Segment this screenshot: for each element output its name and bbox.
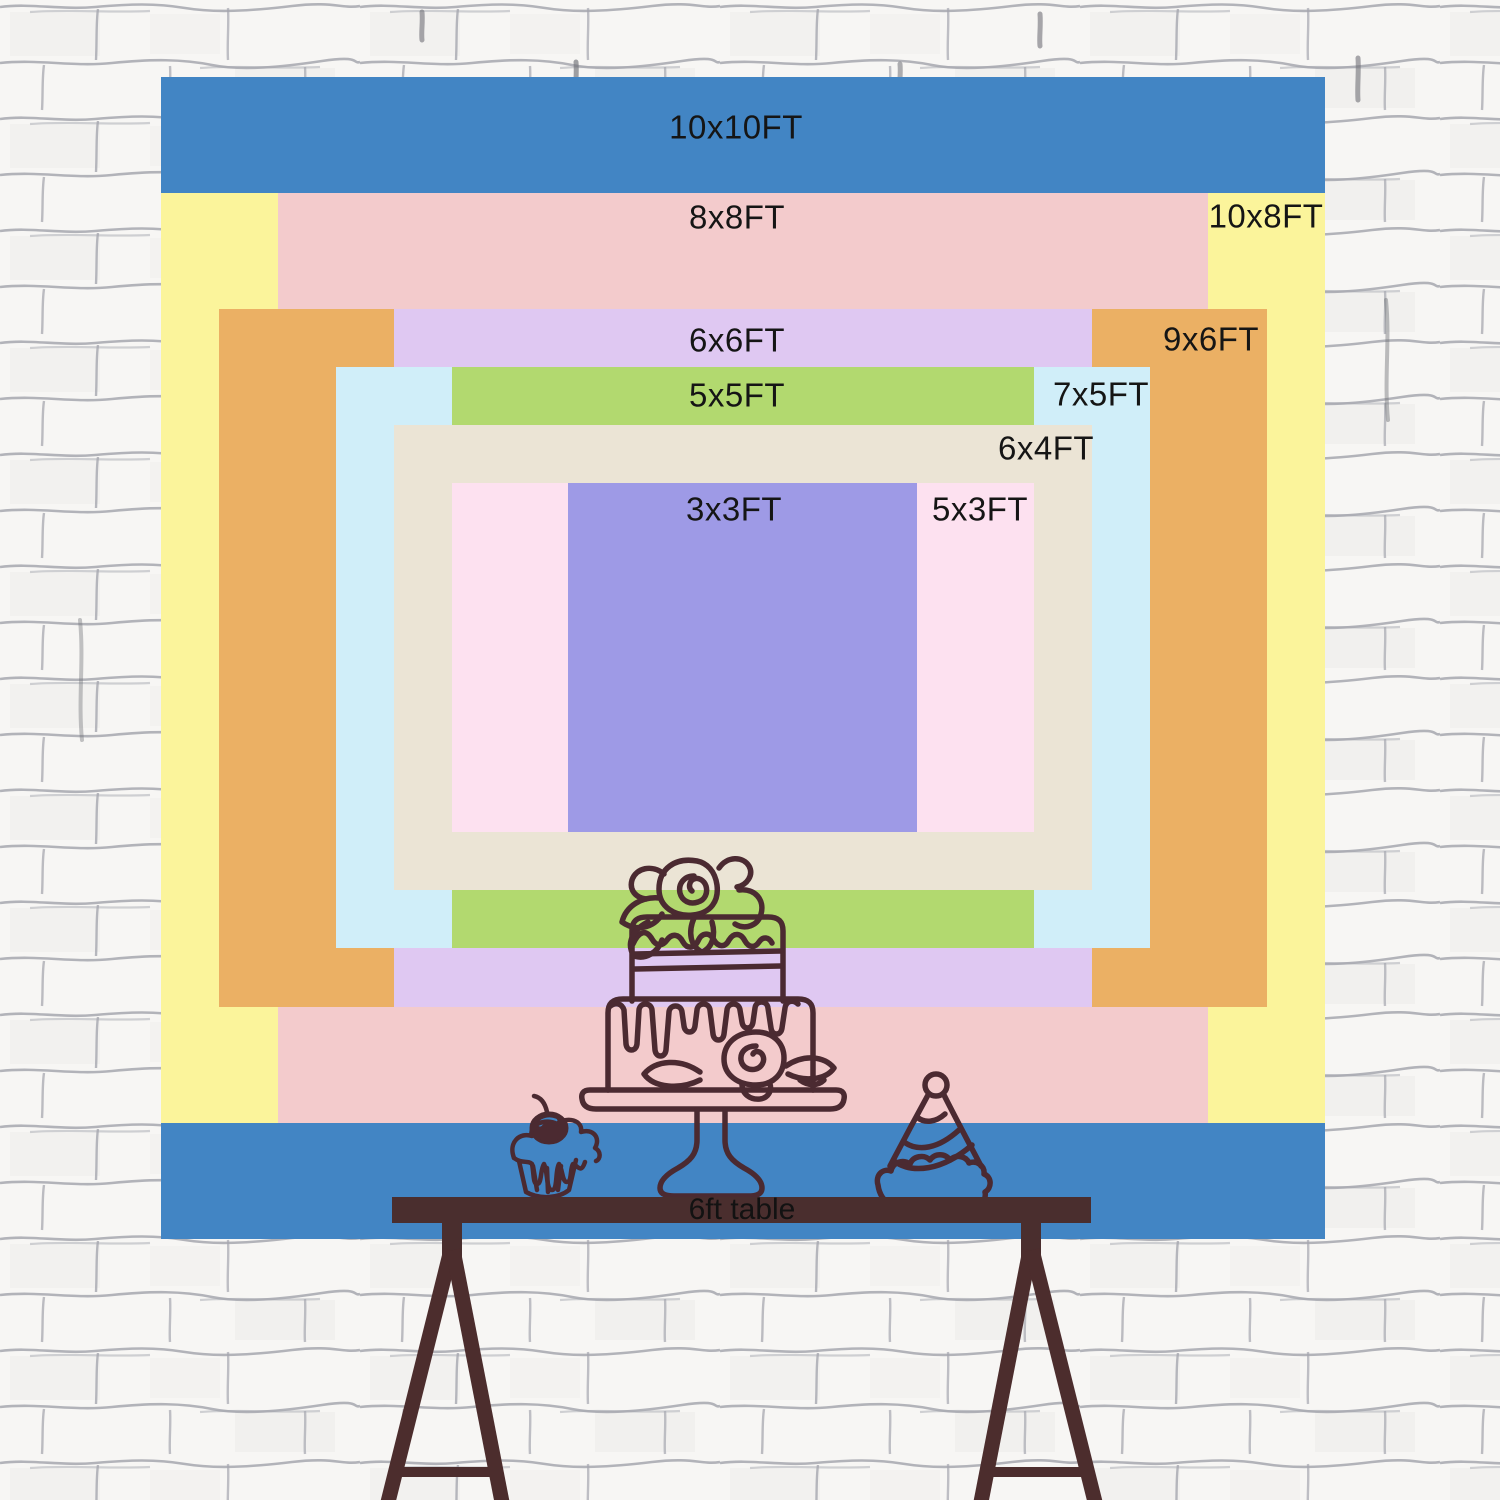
table-size-label: 6ft table (689, 1195, 796, 1225)
table-icon (388, 1197, 1095, 1500)
party-hat-icon (877, 1074, 990, 1215)
right-trestle-legs (981, 1250, 1095, 1500)
table-and-decorations (0, 0, 1500, 1500)
backdrop-size-chart-scene: 10x10FT10x8FT8x8FT9x6FT6x6FT7x5FT5x5FT6x… (0, 0, 1500, 1500)
cupcake-icon (512, 1096, 599, 1197)
cake-icon (582, 859, 844, 1196)
left-trestle-legs (388, 1250, 502, 1500)
